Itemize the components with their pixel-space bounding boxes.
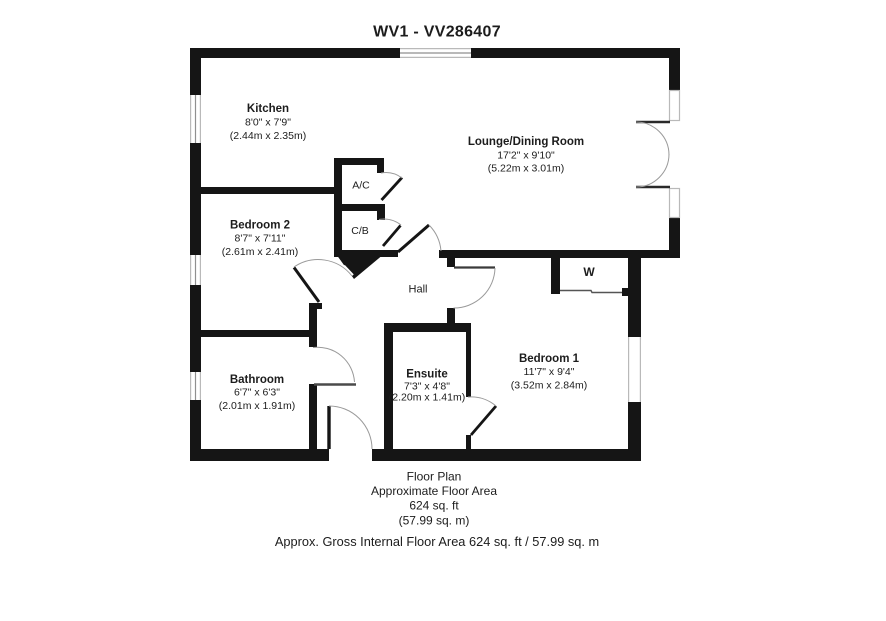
svg-text:(2.61m x 2.41m): (2.61m x 2.41m)	[222, 246, 298, 258]
svg-text:Bedroom 1: Bedroom 1	[519, 353, 580, 365]
svg-text:(3.52m x 2.84m): (3.52m x 2.84m)	[511, 380, 587, 392]
svg-text:Kitchen: Kitchen	[247, 103, 289, 115]
svg-text:6'7" x 6'3": 6'7" x 6'3"	[234, 387, 280, 399]
svg-text:Approx. Gross Internal Floor A: Approx. Gross Internal Floor Area 624 sq…	[275, 534, 599, 549]
svg-text:(57.99 sq. m): (57.99 sq. m)	[399, 514, 470, 528]
svg-text:WV1 - VV286407: WV1 - VV286407	[373, 24, 501, 41]
svg-text:W: W	[583, 265, 595, 279]
svg-text:Ensuite: Ensuite	[406, 369, 448, 381]
svg-text:(2.20m x 1.41m): (2.20m x 1.41m)	[389, 392, 465, 404]
svg-text:17'2" x 9'10": 17'2" x 9'10"	[497, 150, 555, 162]
svg-text:8'0" x 7'9": 8'0" x 7'9"	[245, 117, 291, 129]
svg-text:Floor Plan: Floor Plan	[407, 470, 462, 484]
svg-text:Hall: Hall	[409, 284, 428, 296]
svg-text:Lounge/Dining Room: Lounge/Dining Room	[468, 136, 584, 148]
svg-text:(5.22m x 3.01m): (5.22m x 3.01m)	[488, 163, 564, 175]
svg-text:11'7" x 9'4": 11'7" x 9'4"	[524, 366, 575, 378]
svg-text:A/C: A/C	[352, 180, 370, 192]
svg-text:C/B: C/B	[351, 225, 369, 237]
svg-text:Bedroom 2: Bedroom 2	[230, 220, 290, 232]
svg-text:Approximate Floor Area: Approximate Floor Area	[371, 484, 497, 498]
svg-text:(2.44m x 2.35m): (2.44m x 2.35m)	[230, 130, 306, 142]
svg-text:Bathroom: Bathroom	[230, 374, 284, 386]
svg-text:8'7" x 7'11": 8'7" x 7'11"	[235, 233, 286, 245]
svg-text:624 sq. ft: 624 sq. ft	[409, 499, 459, 513]
svg-text:(2.01m x 1.91m): (2.01m x 1.91m)	[219, 400, 295, 412]
